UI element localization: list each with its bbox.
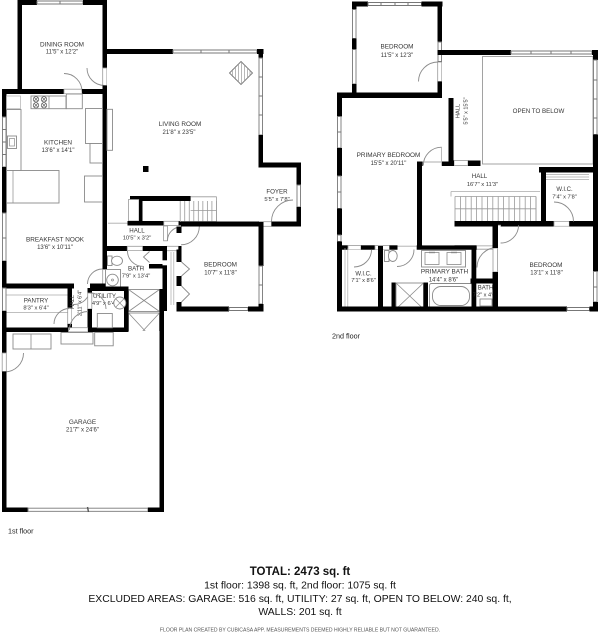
- svg-text:EXCLUDED AREAS: GARAGE: 516 sq: EXCLUDED AREAS: GARAGE: 516 sq. ft, UTIL…: [88, 594, 511, 605]
- svg-text:LIVING ROOM: LIVING ROOM: [159, 121, 202, 128]
- svg-text:HALL: HALL: [456, 103, 462, 118]
- svg-text:BATH: BATH: [478, 286, 494, 292]
- svg-text:7'1" x 8'6": 7'1" x 8'6": [351, 278, 375, 284]
- svg-text:BREAKFAST NOOK: BREAKFAST NOOK: [26, 236, 85, 243]
- svg-text:PRIMARY BATH: PRIMARY BATH: [421, 268, 469, 275]
- svg-text:11'5" x 12'2": 11'5" x 12'2": [46, 50, 78, 56]
- svg-text:21'8" x 23'5": 21'8" x 23'5": [163, 130, 196, 136]
- svg-text:8'3" x 6'4": 8'3" x 6'4": [23, 305, 48, 311]
- svg-text:TOTAL: 2473 sq. ft: TOTAL: 2473 sq. ft: [250, 566, 351, 578]
- svg-text:7'4" x 7'8": 7'4" x 7'8": [552, 194, 576, 200]
- svg-text:15'5" x 20'11": 15'5" x 20'11": [371, 161, 407, 167]
- svg-text:13'6" x 14'1": 13'6" x 14'1": [42, 148, 75, 154]
- svg-text:OPEN TO BELOW: OPEN TO BELOW: [513, 108, 565, 115]
- svg-text:W.I.C.: W.I.C.: [556, 187, 573, 193]
- svg-text:W.I.C.: W.I.C.: [355, 271, 372, 277]
- svg-text:HALL: HALL: [70, 295, 76, 309]
- svg-text:5'5" x 15'5": 5'5" x 15'5": [464, 97, 470, 124]
- svg-text:FLOOR PLAN CREATED BY CUBICASA: FLOOR PLAN CREATED BY CUBICASA APP. MEAS…: [160, 628, 440, 634]
- svg-text:14'4" x 8'6": 14'4" x 8'6": [429, 277, 459, 283]
- svg-text:7'9" x 13'4": 7'9" x 13'4": [122, 273, 151, 279]
- svg-text:11'5" x 12'3": 11'5" x 12'3": [381, 53, 413, 59]
- svg-text:PANTRY: PANTRY: [24, 298, 49, 305]
- svg-text:WALLS: 201 sq. ft: WALLS: 201 sq. ft: [258, 607, 341, 618]
- svg-text:10'5" x 3'2": 10'5" x 3'2": [123, 236, 152, 242]
- svg-text:21'7" x 24'6": 21'7" x 24'6": [66, 427, 99, 433]
- svg-text:16'7" x 11'3": 16'7" x 11'3": [467, 182, 498, 188]
- svg-text:HALL: HALL: [129, 227, 145, 234]
- svg-text:1st floor: 1st floor: [8, 527, 34, 536]
- svg-text:13'1" x 11'8": 13'1" x 11'8": [530, 270, 562, 276]
- svg-text:BEDROOM: BEDROOM: [380, 44, 413, 51]
- svg-text:FOYER: FOYER: [266, 188, 288, 195]
- svg-text:10'7" x 11'8": 10'7" x 11'8": [204, 271, 236, 277]
- svg-text:KITCHEN: KITCHEN: [44, 140, 72, 147]
- svg-text:2nd floor: 2nd floor: [332, 332, 361, 341]
- svg-text:DINING ROOM: DINING ROOM: [40, 41, 84, 48]
- svg-text:BEDROOM: BEDROOM: [529, 262, 562, 269]
- svg-text:BEDROOM: BEDROOM: [204, 262, 237, 269]
- svg-text:GARAGE: GARAGE: [69, 419, 96, 426]
- svg-text:13'6" x 10'11": 13'6" x 10'11": [37, 245, 73, 251]
- svg-text:HALL: HALL: [472, 173, 488, 180]
- svg-text:5'5" x 7'8": 5'5" x 7'8": [264, 197, 289, 203]
- svg-text:1st floor: 1398 sq. ft, 2nd fl: 1st floor: 1398 sq. ft, 2nd floor: 1075 …: [204, 581, 396, 592]
- svg-text:PRIMARY BEDROOM: PRIMARY BEDROOM: [357, 152, 421, 159]
